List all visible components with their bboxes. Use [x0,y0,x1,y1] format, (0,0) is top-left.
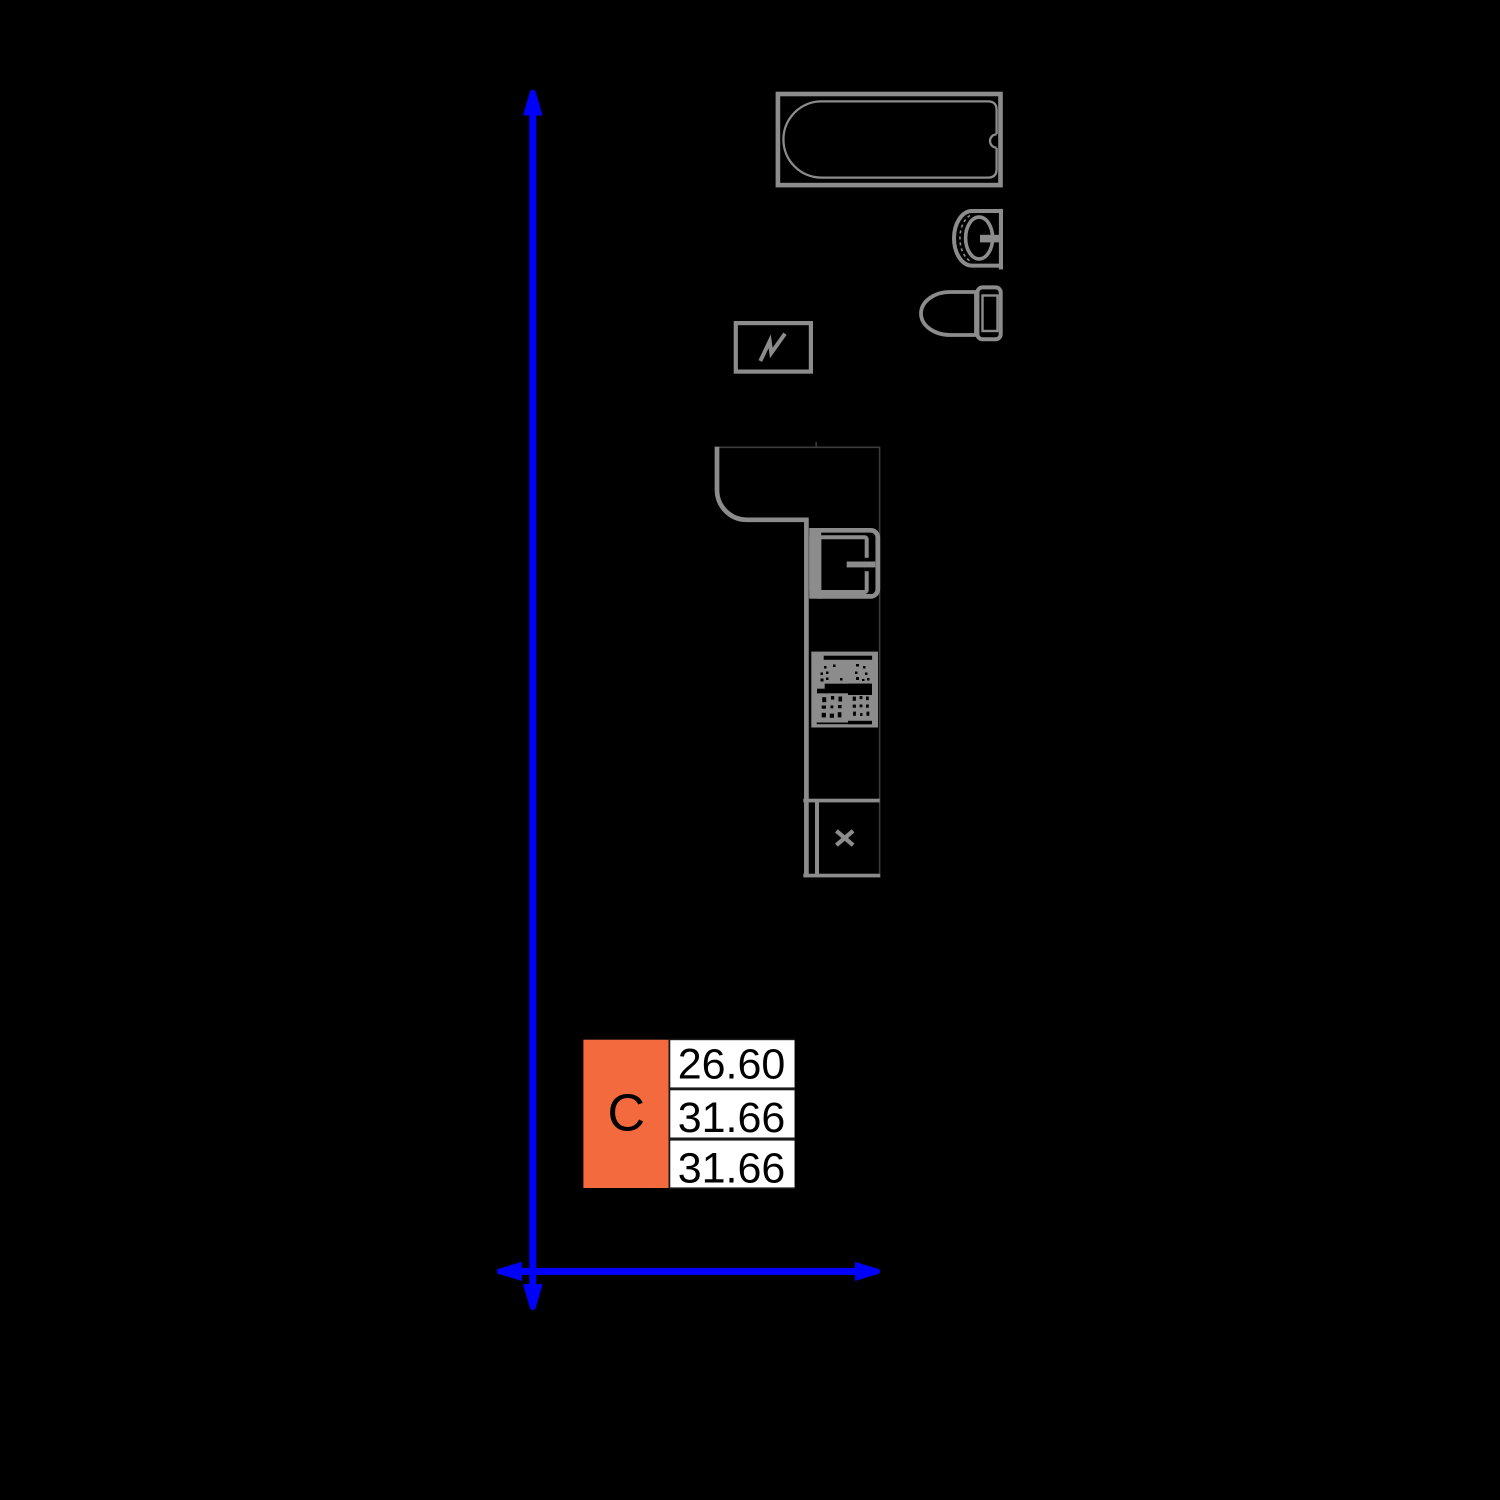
svg-text:26.60: 26.60 [678,1040,786,1088]
svg-text:31.66: 31.66 [678,1145,786,1193]
svg-text:C: C [608,1085,646,1143]
svg-text:31.66: 31.66 [678,1094,786,1142]
